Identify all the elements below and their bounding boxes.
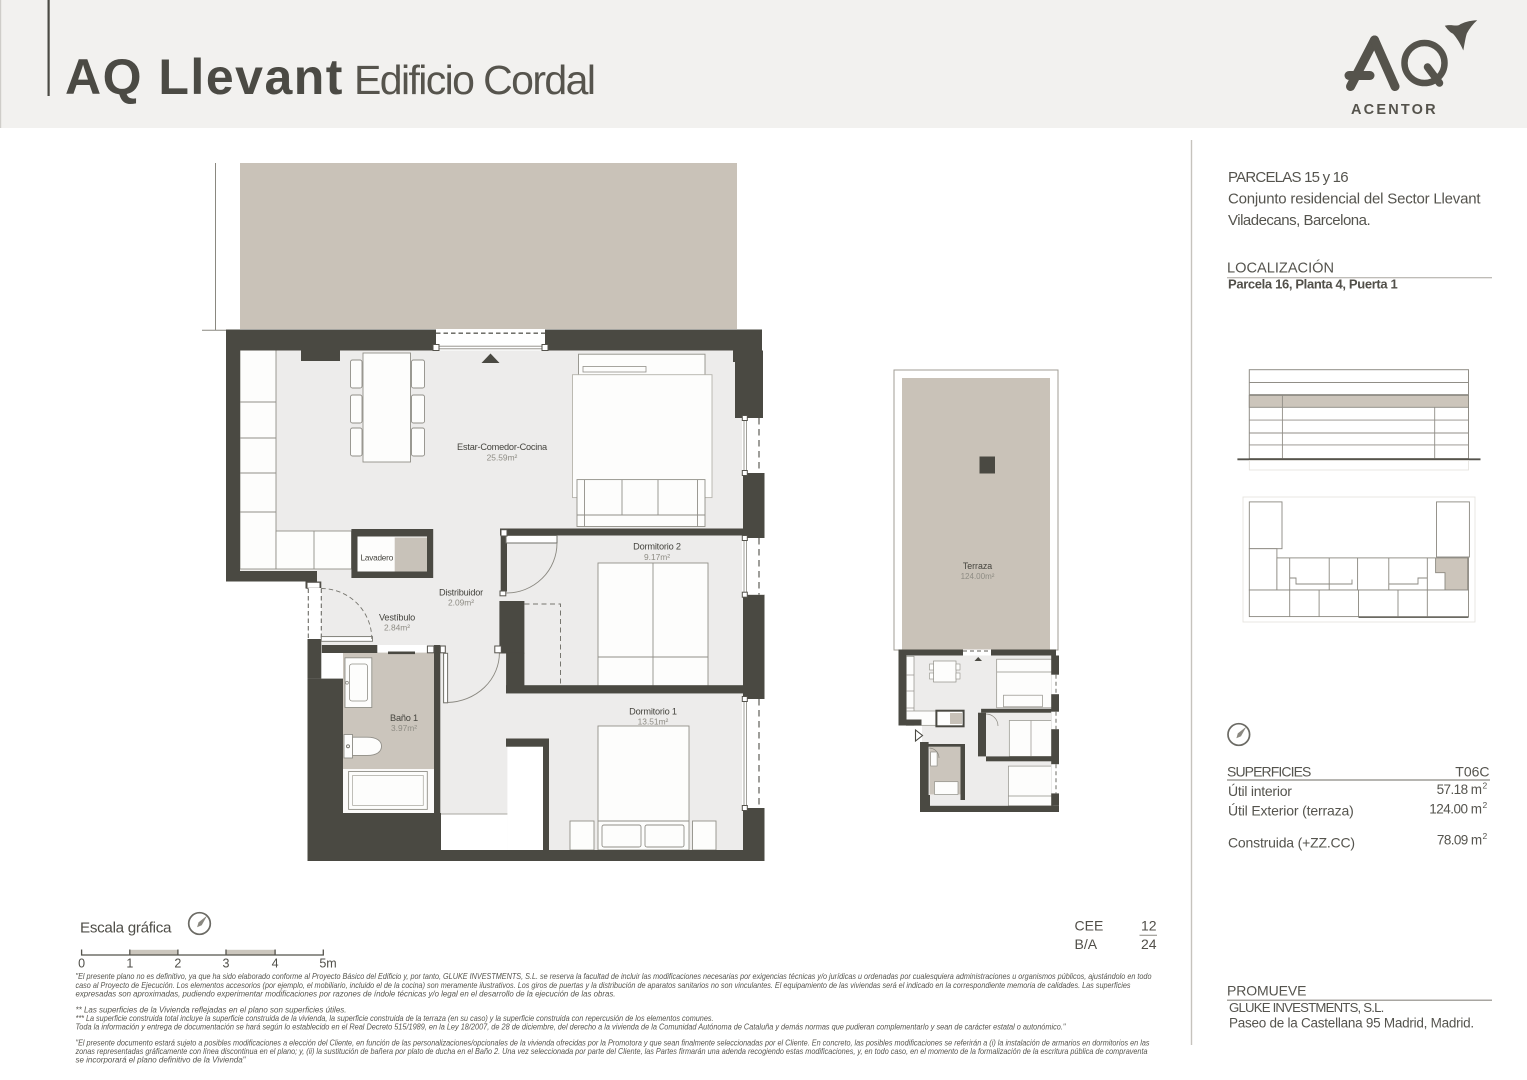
svg-text:Estar-Comedor-Cocina: Estar-Comedor-Cocina [457,442,548,452]
svg-text:Útil Exterior (terraza): Útil Exterior (terraza) [1228,803,1354,819]
svg-text:LOCALIZACIÓN: LOCALIZACIÓN [1227,260,1334,277]
svg-text:2: 2 [1483,831,1488,841]
svg-text:12: 12 [1141,918,1157,934]
svg-text:2: 2 [1483,800,1488,810]
svg-text:PROMUEVE: PROMUEVE [1227,983,1306,999]
svg-text:se incorporará el plano defini: se incorporará el plano definitivo de la… [76,1055,247,1065]
svg-text:2: 2 [1483,781,1488,791]
svg-text:Paseo de la Castellana 95 Madr: Paseo de la Castellana 95 Madrid, Madrid… [1229,1016,1474,1031]
svg-text:expresadas son aproximadas, pu: expresadas son aproximadas, pudiendo exp… [76,989,616,999]
svg-text:Edificio Cordal: Edificio Cordal [354,57,594,103]
svg-text:Toda la información y entrega: Toda la información y entrega de documen… [76,1022,1067,1032]
svg-text:PARCELAS 15 y 16: PARCELAS 15 y 16 [1228,169,1348,186]
svg-text:4: 4 [272,957,279,971]
svg-text:GLUKE INVESTMENTS, S.L.: GLUKE INVESTMENTS, S.L. [1229,1000,1384,1015]
svg-text:2.09m²: 2.09m² [448,598,474,608]
svg-text:Terraza: Terraza [963,561,992,571]
svg-text:124.00 m: 124.00 m [1429,802,1482,817]
svg-text:Construida (+ZZ.CC): Construida (+ZZ.CC) [1228,835,1355,851]
svg-text:B/A: B/A [1075,936,1098,952]
svg-text:13.51m²: 13.51m² [638,717,669,727]
svg-text:57.18 m: 57.18 m [1437,782,1482,797]
svg-text:0: 0 [78,957,85,971]
svg-text:ACENTOR: ACENTOR [1351,102,1438,118]
svg-text:Dormitorio 1: Dormitorio 1 [629,707,677,717]
svg-text:78.09 m: 78.09 m [1437,833,1482,848]
svg-text:Conjunto residencial del Secto: Conjunto residencial del Sector Llevant [1228,191,1481,208]
svg-text:Lavadero: Lavadero [361,554,394,563]
svg-text:25.59m²: 25.59m² [487,453,518,463]
svg-text:9.17m²: 9.17m² [644,552,670,562]
svg-text:Distribuidor: Distribuidor [439,588,483,598]
svg-text:1: 1 [126,957,133,971]
svg-text:5m: 5m [319,957,336,971]
svg-text:T06C: T06C [1455,764,1489,780]
svg-text:Útil interior: Útil interior [1228,783,1292,799]
svg-text:CEE: CEE [1075,918,1104,934]
svg-text:Viladecans, Barcelona.: Viladecans, Barcelona. [1228,212,1370,229]
svg-text:Vestíbulo: Vestíbulo [379,613,415,623]
svg-text:Dormitorio 2: Dormitorio 2 [633,542,681,552]
svg-text:3: 3 [223,957,230,971]
svg-text:2: 2 [174,957,181,971]
svg-text:Parcela 16, Planta 4, Puerta 1: Parcela 16, Planta 4, Puerta 1 [1228,277,1398,292]
svg-text:AQ Llevant: AQ Llevant [65,49,344,105]
svg-text:24: 24 [1141,936,1157,952]
svg-text:Escala gráfica: Escala gráfica [80,920,172,937]
svg-text:124.00m²: 124.00m² [961,572,995,581]
svg-text:SUPERFICIES: SUPERFICIES [1227,764,1311,780]
svg-text:2.84m²: 2.84m² [384,623,410,633]
svg-text:3.97m²: 3.97m² [391,723,417,733]
svg-text:Baño 1: Baño 1 [390,713,418,723]
